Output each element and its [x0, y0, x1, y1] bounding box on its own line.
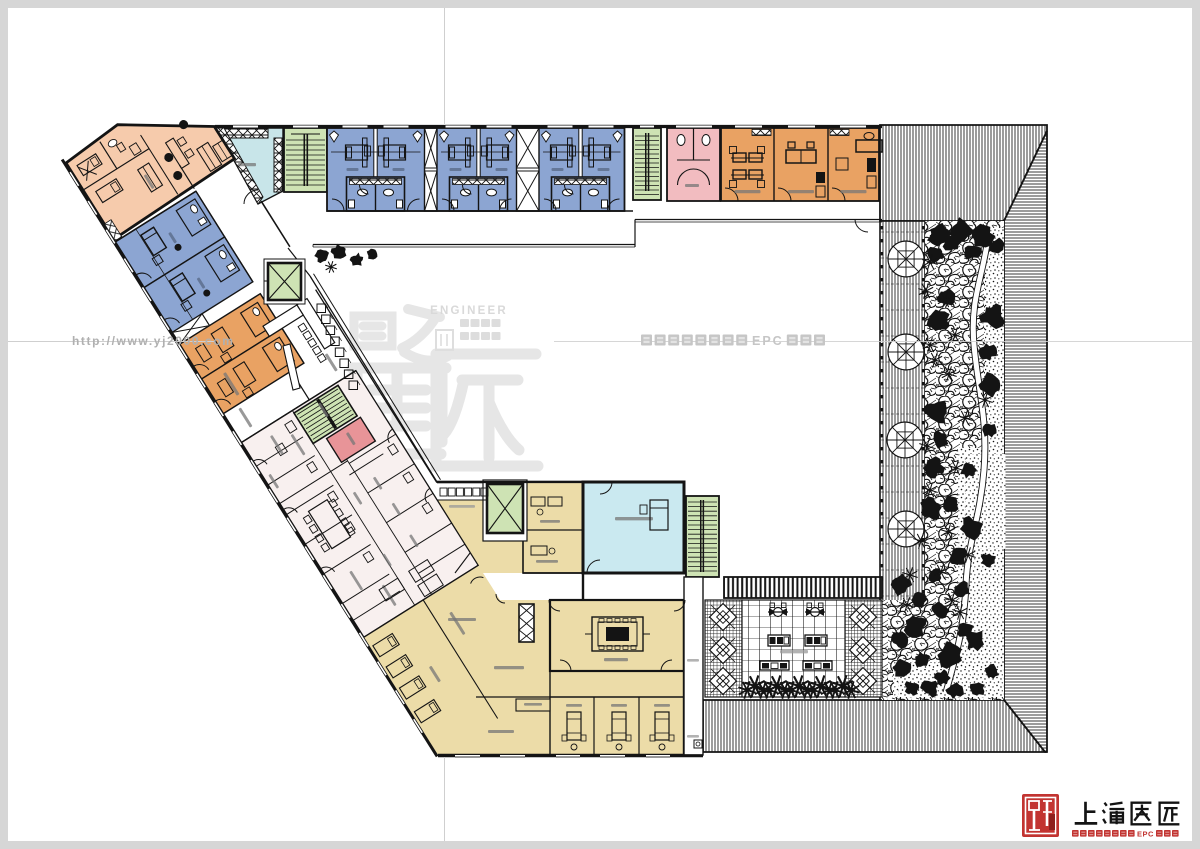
svg-text:EPC: EPC [752, 334, 784, 348]
svg-text:ENGINEER: ENGINEER [430, 305, 508, 317]
svg-text:EPC: EPC [1137, 829, 1154, 838]
svg-text:http://www.yj2000.com: http://www.yj2000.com [72, 334, 235, 348]
